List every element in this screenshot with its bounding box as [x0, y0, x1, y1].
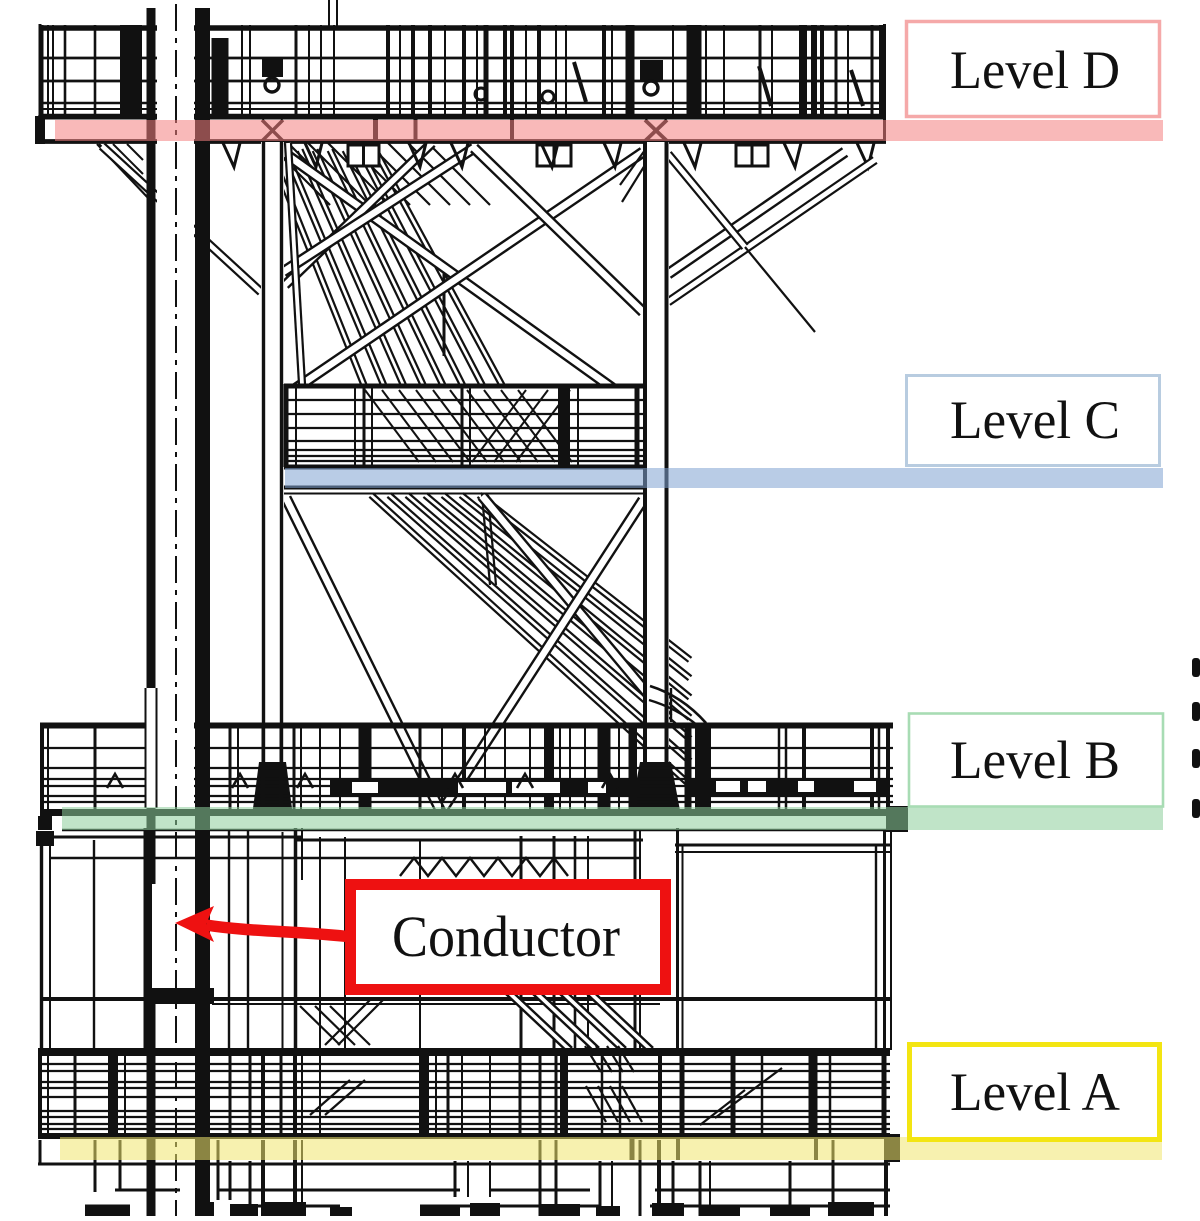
svg-text:Level D: Level D [950, 40, 1120, 100]
svg-text:Level C: Level C [950, 390, 1120, 450]
svg-text:Level B: Level B [950, 730, 1120, 790]
svg-text:Level A: Level A [950, 1062, 1120, 1122]
svg-text:Conductor: Conductor [392, 904, 620, 969]
